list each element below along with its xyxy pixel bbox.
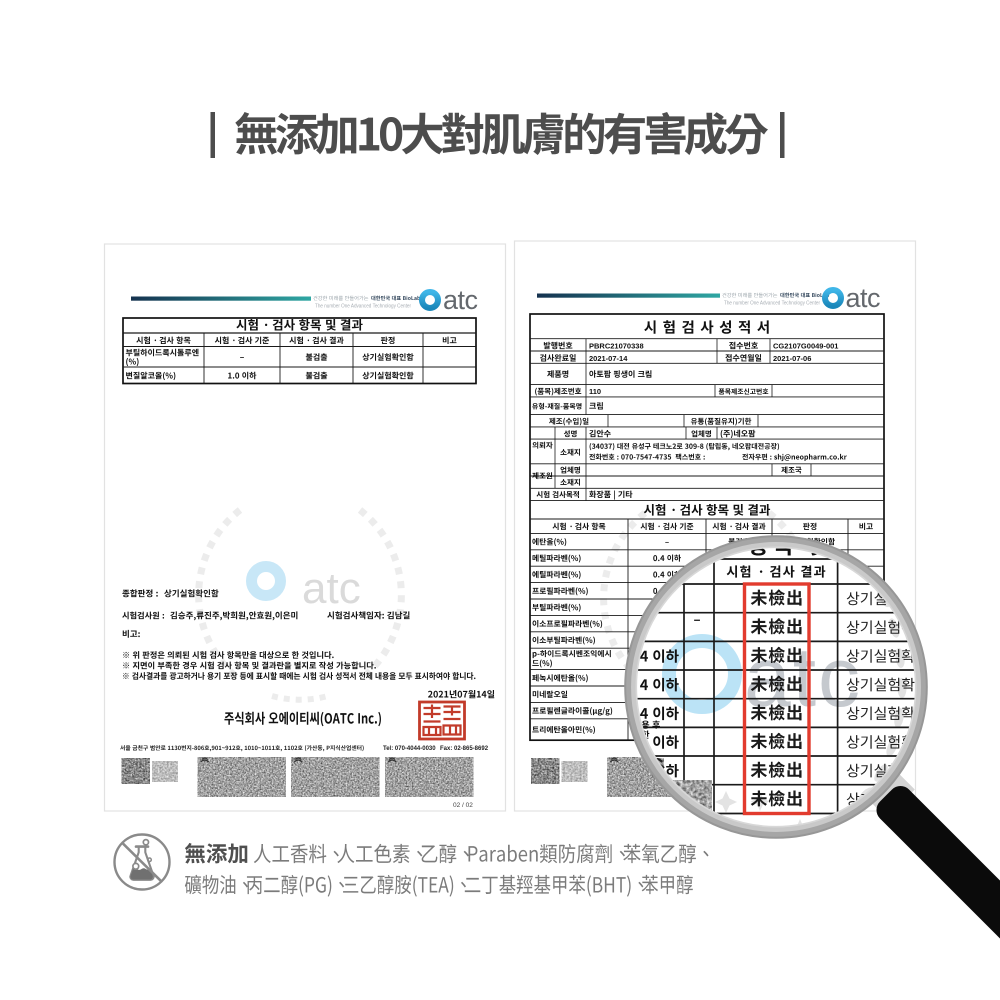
svg-text:atc: atc [302,564,361,613]
svg-text:atc: atc [744,630,862,724]
svg-text:atc: atc [846,283,881,313]
svg-text:CG2107G0049-001: CG2107G0049-001 [773,342,838,351]
svg-text:110: 110 [589,387,601,396]
svg-text:PBRC21070338: PBRC21070338 [589,342,644,351]
svg-text:Tel: 070-4044-0030: Tel: 070-4044-0030 [383,746,436,752]
svg-text:The number One Advanced Techno: The number One Advanced Technology Cente… [315,304,411,310]
svg-text:Fax: 02-865-8692: Fax: 02-865-8692 [440,746,489,752]
svg-text:02 / 02: 02 / 02 [453,802,473,809]
svg-text:2021-07-14: 2021-07-14 [589,354,628,363]
svg-text:2021-07-06: 2021-07-06 [773,354,811,363]
svg-text:The number One Advanced Techno: The number One Advanced Technology Cente… [724,301,820,307]
svg-text:atc: atc [443,285,478,315]
